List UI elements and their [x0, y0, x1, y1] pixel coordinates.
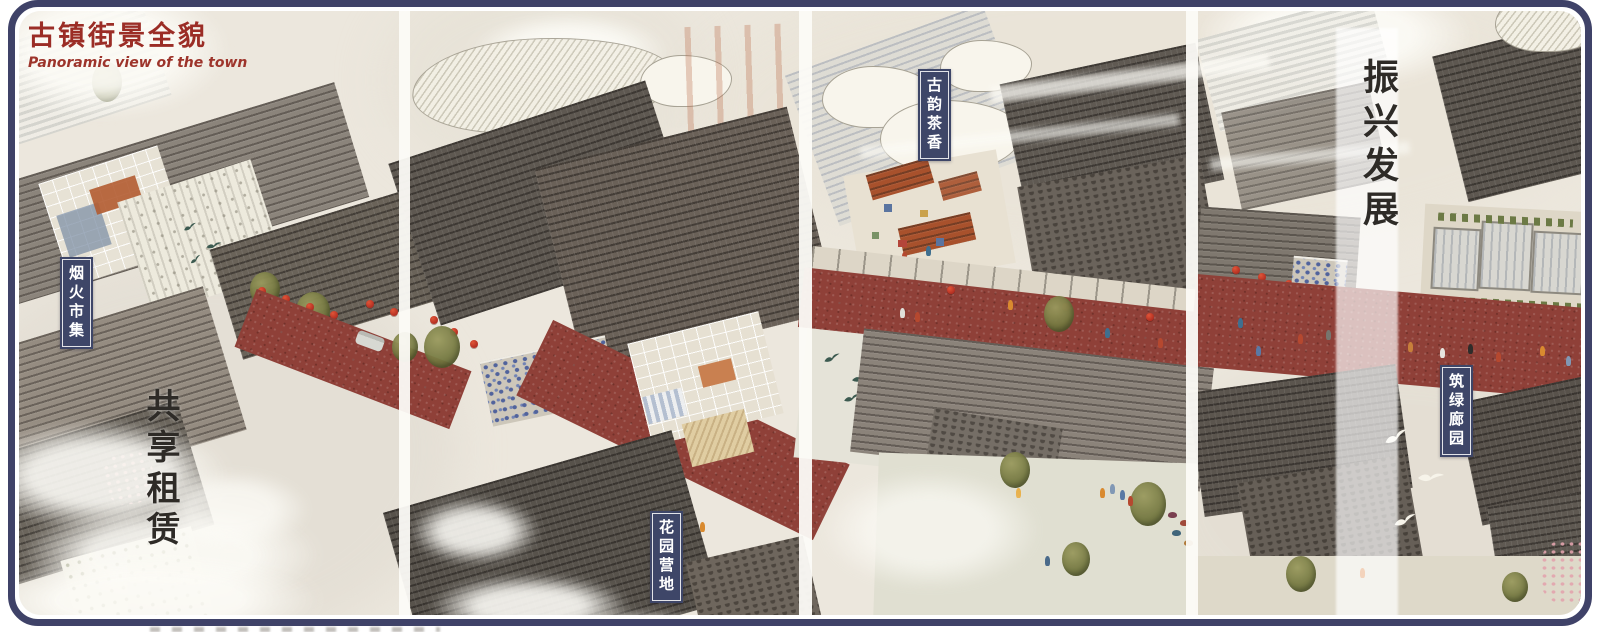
pedestrian: [1256, 346, 1261, 356]
title-block: 古镇街景全貌 Panoramic view of the town: [28, 14, 247, 71]
tree: [1130, 482, 1166, 526]
pedestrian: [1468, 344, 1473, 354]
lantern-icon: [1146, 313, 1154, 321]
pedestrian: [1238, 318, 1243, 328]
cloud: [19, 555, 320, 615]
stall-box: [898, 240, 907, 247]
swallow-icon: [822, 351, 843, 364]
lantern-icon: [470, 340, 478, 348]
zone-label-smoke-market: 烟火市集: [60, 257, 93, 349]
panorama-artwork: 古镇街景全貌 Panoramic view of the town 烟火市集 花…: [19, 11, 1581, 615]
pedestrian: [1120, 490, 1125, 500]
pedestrian: [900, 308, 905, 318]
page-subtitle: Panoramic view of the town: [28, 55, 247, 71]
pedestrian: [1440, 348, 1445, 358]
cloud: [820, 470, 1040, 590]
blossom-tree: [1540, 540, 1581, 604]
lantern-icon: [1232, 266, 1240, 274]
glass-pergola: [1430, 227, 1481, 291]
stall-box: [936, 238, 944, 246]
tree: [1502, 572, 1528, 602]
tree: [1044, 296, 1074, 332]
stall-box: [920, 210, 928, 217]
lantern-icon: [430, 316, 438, 324]
glass-pergola: [1530, 231, 1581, 296]
zone-label-garden-camp: 花园营地: [650, 511, 683, 603]
page-title: 古镇街景全貌: [28, 14, 247, 53]
cloud: [560, 612, 720, 615]
pedestrian: [1045, 556, 1050, 566]
cloud: [430, 575, 630, 615]
seated-person: [1168, 512, 1177, 518]
lantern-icon: [390, 308, 398, 316]
seated-person: [1172, 530, 1181, 536]
pedestrian: [1128, 496, 1133, 506]
tree: [1286, 556, 1316, 592]
glass-pergola: [1478, 221, 1533, 292]
theme-text-revitalize-develop: 振兴发展: [1352, 58, 1404, 234]
pedestrian: [1008, 300, 1013, 310]
pedestrian: [1326, 330, 1331, 340]
pedestrian: [1408, 342, 1413, 352]
pedestrian: [1298, 334, 1303, 344]
zone-label-tea-aroma: 古韵茶香: [918, 69, 951, 161]
tree: [1062, 542, 1090, 576]
scene: 古镇街景全貌 Panoramic view of the town 烟火市集 花…: [19, 11, 1581, 615]
zone-label-green-corridor: 筑绿廊园: [1440, 365, 1473, 457]
pedestrian: [1100, 488, 1105, 498]
pedestrian: [1496, 352, 1501, 362]
pedestrian: [1540, 346, 1545, 356]
pedestrian: [700, 522, 705, 532]
cropped-caption-remnant: [150, 627, 440, 632]
pedestrian: [915, 312, 920, 322]
cloud: [410, 498, 540, 564]
panel-divider: [799, 11, 812, 615]
lantern-icon: [366, 300, 374, 308]
stall-box: [872, 232, 879, 239]
pedestrian: [926, 246, 931, 256]
panel-divider: [399, 11, 410, 615]
stall-box: [884, 204, 892, 212]
pedestrian: [1105, 328, 1110, 338]
panel-divider: [1186, 11, 1198, 615]
pedestrian: [1110, 484, 1115, 494]
poster-frame: 古镇街景全貌 Panoramic view of the town 烟火市集 花…: [8, 0, 1592, 626]
lantern-icon: [947, 286, 955, 294]
pedestrian: [1158, 338, 1163, 348]
pedestrian: [1566, 356, 1571, 366]
tree: [424, 326, 460, 368]
theme-text-shared-rental: 共享租赁: [136, 388, 185, 552]
